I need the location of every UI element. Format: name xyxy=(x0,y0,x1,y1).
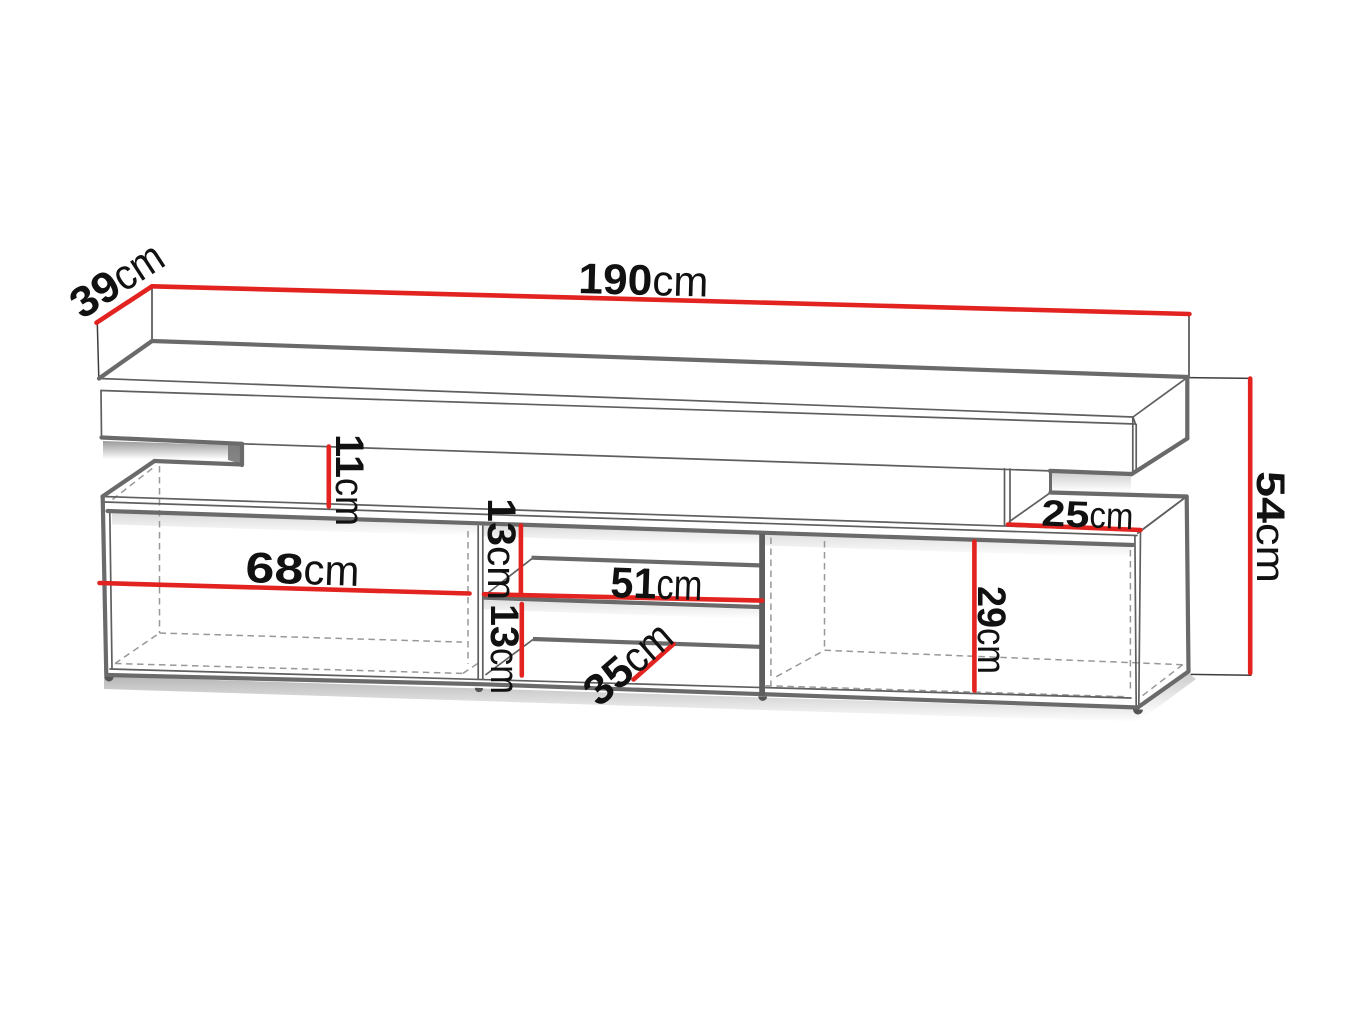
svg-text:13cm: 13cm xyxy=(479,498,523,600)
svg-text:68cm: 68cm xyxy=(245,544,361,596)
svg-text:51cm: 51cm xyxy=(610,559,704,610)
svg-text:13cm: 13cm xyxy=(482,604,526,694)
svg-text:54cm: 54cm xyxy=(1248,471,1292,583)
svg-text:25cm: 25cm xyxy=(1041,493,1135,538)
svg-text:11cm: 11cm xyxy=(327,434,371,526)
svg-text:29cm: 29cm xyxy=(969,586,1013,674)
svg-text:190cm: 190cm xyxy=(578,255,709,307)
